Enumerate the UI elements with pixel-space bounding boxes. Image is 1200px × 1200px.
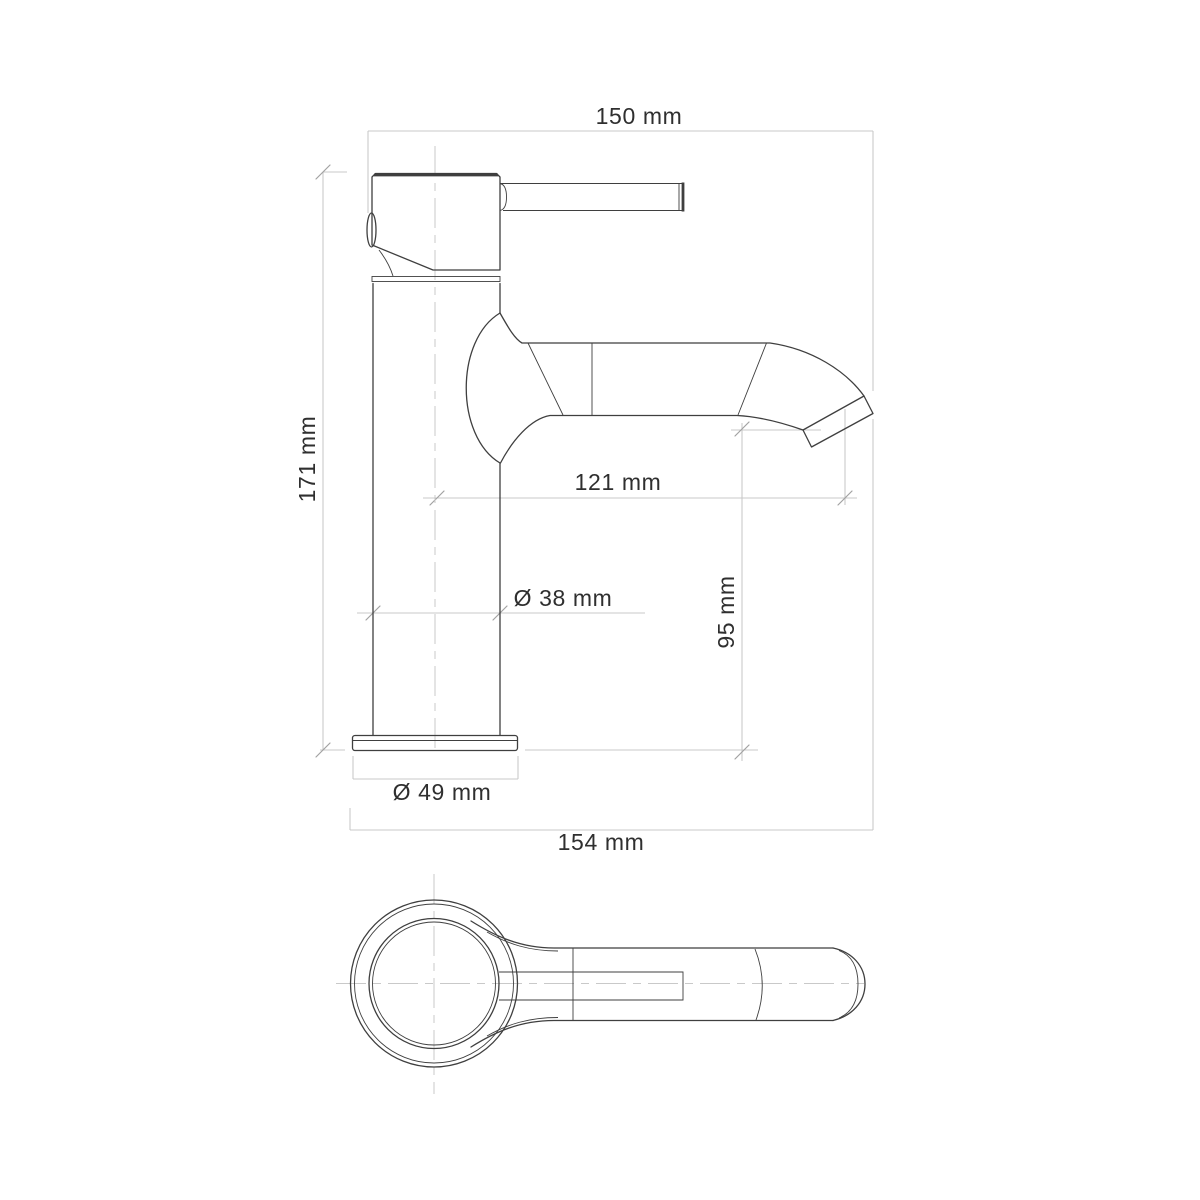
spout-surface-lines [528, 343, 767, 415]
faucet-technical-drawing: 150 mm 171 mm 121 mm Ø 38 mm 95 mm Ø 49 … [0, 0, 1200, 1200]
dim-line-154 [350, 808, 873, 830]
label-overall-width-bottom: 154 mm [558, 829, 645, 855]
faucet-side-view: 150 mm 171 mm 121 mm Ø 38 mm 95 mm Ø 49 … [294, 103, 873, 855]
faucet-head [372, 174, 500, 271]
label-spout-reach: 121 mm [575, 469, 662, 495]
label-overall-height: 171 mm [294, 416, 320, 503]
label-overall-width-top: 150 mm [596, 103, 683, 129]
dim-line-171 [320, 172, 347, 750]
label-body-diameter: Ø 38 mm [514, 585, 613, 611]
technical-drawing-page: 150 mm 171 mm 121 mm Ø 38 mm 95 mm Ø 49 … [0, 0, 1200, 1200]
label-base-diameter: Ø 49 mm [393, 779, 492, 805]
faucet-top-view [336, 874, 865, 1094]
lever-top-view [499, 972, 683, 1000]
head-collar-ring [372, 277, 500, 282]
head-transition-arc [379, 250, 393, 276]
dim-line-95 [731, 423, 821, 761]
label-spout-height: 95 mm [713, 575, 739, 648]
grip-boundary-arc [755, 949, 762, 1020]
spout-outlet-cap [803, 396, 873, 447]
faucet-body [373, 284, 500, 736]
lever-handle [500, 184, 683, 211]
dimension-labels: 150 mm 171 mm 121 mm Ø 38 mm 95 mm Ø 49 … [294, 103, 739, 855]
faucet-outline [353, 174, 874, 751]
spout [500, 313, 864, 463]
dim-line-49 [353, 756, 518, 779]
spout-body-junction-arc [466, 313, 500, 463]
handle-end-cap-outer [833, 948, 865, 1021]
